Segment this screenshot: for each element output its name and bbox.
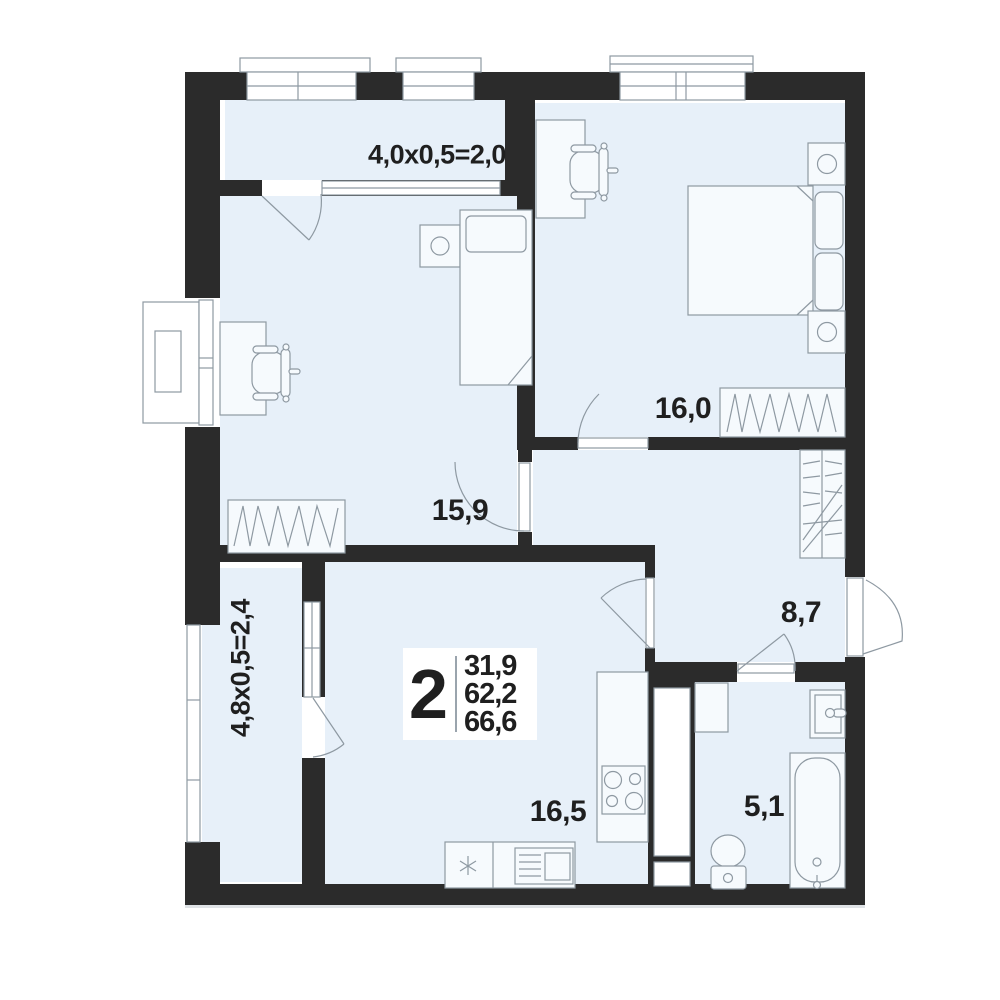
second-room-door-leaf xyxy=(519,463,530,531)
wall-right xyxy=(845,72,865,905)
bedroom-area-label: 16,0 xyxy=(655,392,711,426)
hallway-area-label: 8,7 xyxy=(781,596,821,630)
duct-shafts xyxy=(654,688,690,886)
wardrobe-icon xyxy=(228,500,345,553)
kitchen-living-area-label: 16,5 xyxy=(530,795,586,829)
bay-window-ledge-inner xyxy=(155,331,181,392)
plan-shadow xyxy=(185,905,865,908)
duct-shaft xyxy=(654,862,690,886)
duct-shaft xyxy=(654,688,690,856)
total-area-value: 66,6 xyxy=(464,708,516,736)
stove-icon xyxy=(602,766,645,814)
rooms-count: 2 xyxy=(409,659,446,729)
area-values: 31,9 62,2 66,6 xyxy=(464,652,516,736)
bathroom-door-leaf xyxy=(738,664,794,673)
bathroom-cabinet-icon xyxy=(695,683,728,732)
lamp-icon xyxy=(431,237,449,255)
window-sill xyxy=(396,58,481,72)
entrance-door-arc xyxy=(863,580,902,654)
toilet-icon xyxy=(711,835,746,889)
living-area-value: 31,9 xyxy=(464,652,516,680)
apartment-info-box: 2 31,9 62,2 66,6 xyxy=(403,648,537,740)
hallway-wardrobe-icon xyxy=(800,450,845,558)
second-room-area-label: 15,9 xyxy=(432,494,488,528)
balcony-left-dimensions-label: 4,8x0,5=2,4 xyxy=(226,599,257,737)
bedroom-door-leaf xyxy=(578,438,648,448)
wall-bedroom-bottom xyxy=(517,437,845,450)
balcony-top-dimensions-label: 4,0x0,5=2,0 xyxy=(368,140,506,171)
single-bed-icon xyxy=(460,210,532,385)
wall-balcony-left-post-bottom xyxy=(185,842,220,905)
wardrobe-icon xyxy=(720,388,845,437)
floor-corridor xyxy=(533,450,845,545)
balcony-glazing xyxy=(187,625,200,842)
window-sill xyxy=(240,58,370,72)
bathroom-area-label: 5,1 xyxy=(744,790,784,824)
sink-icon xyxy=(810,690,846,738)
lamp-icon xyxy=(818,323,837,342)
washing-machine-icon xyxy=(515,848,573,884)
bathtub-icon xyxy=(790,753,845,889)
kitchen-counter-right xyxy=(597,672,648,842)
entrance-door-leaf xyxy=(847,578,863,656)
living-door-leaf xyxy=(646,578,654,648)
main-area-value: 62,2 xyxy=(464,680,516,708)
bay-window-icon xyxy=(199,300,213,425)
floor-plan: 4,0x0,5=2,0 4,8x0,5=2,4 16,0 15,9 8,7 16… xyxy=(0,0,1000,1000)
wall-balcony-left-post-top xyxy=(185,568,220,625)
info-divider xyxy=(455,656,457,732)
lamp-icon xyxy=(818,155,837,174)
